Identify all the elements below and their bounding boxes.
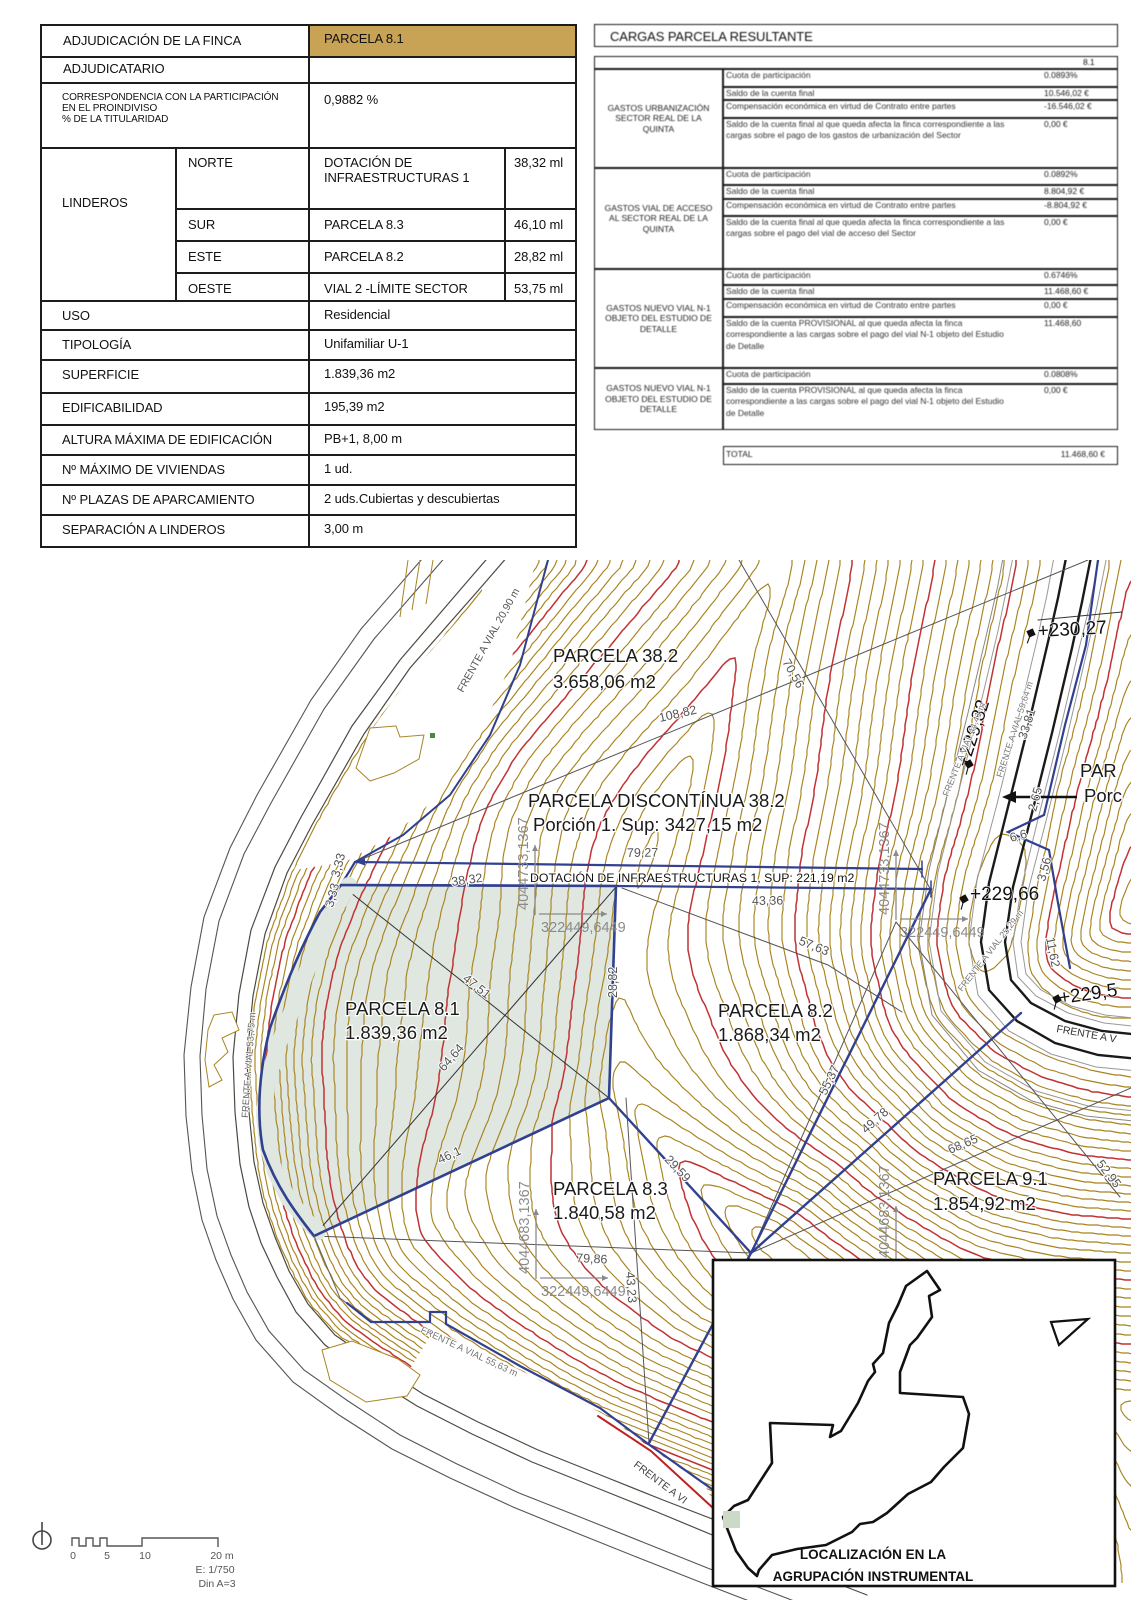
svg-text:E: 1/750: E: 1/750	[195, 1564, 234, 1576]
svg-text:4044733,1367: 4044733,1367	[877, 822, 893, 915]
svg-text:322449,6449: 322449,6449	[900, 925, 985, 941]
svg-text:PARCELA 8.3: PARCELA 8.3	[553, 1178, 668, 1199]
svg-text:Porc: Porc	[1084, 785, 1122, 806]
svg-text:AGRUPACIÓN INSTRUMENTAL: AGRUPACIÓN INSTRUMENTAL	[773, 1569, 974, 1584]
svg-text:68,65: 68,65	[946, 1132, 980, 1157]
svg-text:3,56: 3,56	[1034, 856, 1054, 883]
svg-text:PARCELA 8.2: PARCELA 8.2	[718, 1000, 833, 1021]
svg-text:FRENTE A VIAL 25,29 m: FRENTE A VIAL 25,29 m	[956, 908, 1026, 993]
svg-text:79,27: 79,27	[627, 845, 659, 860]
svg-text:Porción 1. Sup: 3427,15 m2: Porción 1. Sup: 3427,15 m2	[533, 814, 762, 835]
svg-text:0: 0	[70, 1550, 76, 1562]
svg-text:+230,27: +230,27	[1037, 617, 1107, 642]
svg-text:PARCELA 38.2: PARCELA 38.2	[553, 645, 678, 666]
svg-text:108,82: 108,82	[658, 703, 698, 725]
svg-text:5: 5	[104, 1550, 110, 1562]
svg-text:11,62: 11,62	[1043, 936, 1063, 969]
svg-text:3.658,06 m2: 3.658,06 m2	[553, 671, 656, 692]
svg-text:1.840,58 m2: 1.840,58 m2	[553, 1202, 656, 1223]
svg-text:322449,6449: 322449,6449	[541, 1284, 626, 1300]
svg-text:322449,6449: 322449,6449	[541, 920, 626, 936]
svg-text:1.854,92 m2: 1.854,92 m2	[933, 1193, 1036, 1214]
svg-text:10: 10	[139, 1550, 151, 1562]
svg-text:43,36: 43,36	[752, 893, 784, 908]
svg-text:1.868,34 m2: 1.868,34 m2	[718, 1024, 821, 1045]
svg-text:PAR: PAR	[1080, 760, 1117, 781]
svg-text:79,86: 79,86	[576, 1251, 608, 1267]
svg-text:28,82: 28,82	[606, 967, 620, 998]
svg-text:2,65: 2,65	[1025, 786, 1045, 813]
svg-text:20 m: 20 m	[210, 1550, 234, 1562]
svg-text:1.839,36 m2: 1.839,36 m2	[345, 1022, 448, 1043]
svg-text:4044683,1367: 4044683,1367	[877, 1165, 893, 1258]
svg-text:4044683,1367: 4044683,1367	[517, 1181, 533, 1274]
svg-text:PARCELA 9.1: PARCELA 9.1	[933, 1168, 1048, 1189]
svg-text:FRENTE A VIAL 53,75 m: FRENTE A VIAL 53,75 m	[240, 1012, 258, 1118]
svg-text:Din A=3: Din A=3	[198, 1578, 235, 1590]
svg-text:43,23: 43,23	[623, 1271, 639, 1303]
svg-text:+229,5: +229,5	[1058, 980, 1119, 1009]
svg-text:PARCELA 8.1: PARCELA 8.1	[345, 998, 460, 1019]
svg-text:PARCELA DISCONTÍNUA 38.2: PARCELA DISCONTÍNUA 38.2	[528, 790, 785, 811]
svg-text:+229,66: +229,66	[970, 884, 1039, 905]
svg-text:4044733,1367: 4044733,1367	[516, 817, 532, 910]
svg-text:LOCALIZACIÓN EN LA: LOCALIZACIÓN EN LA	[800, 1547, 946, 1562]
svg-text:55,37: 55,37	[816, 1063, 842, 1097]
svg-text:DOTACIÓN DE INFRAESTRUCTURAS 1: DOTACIÓN DE INFRAESTRUCTURAS 1, SUP: 221…	[530, 870, 855, 885]
